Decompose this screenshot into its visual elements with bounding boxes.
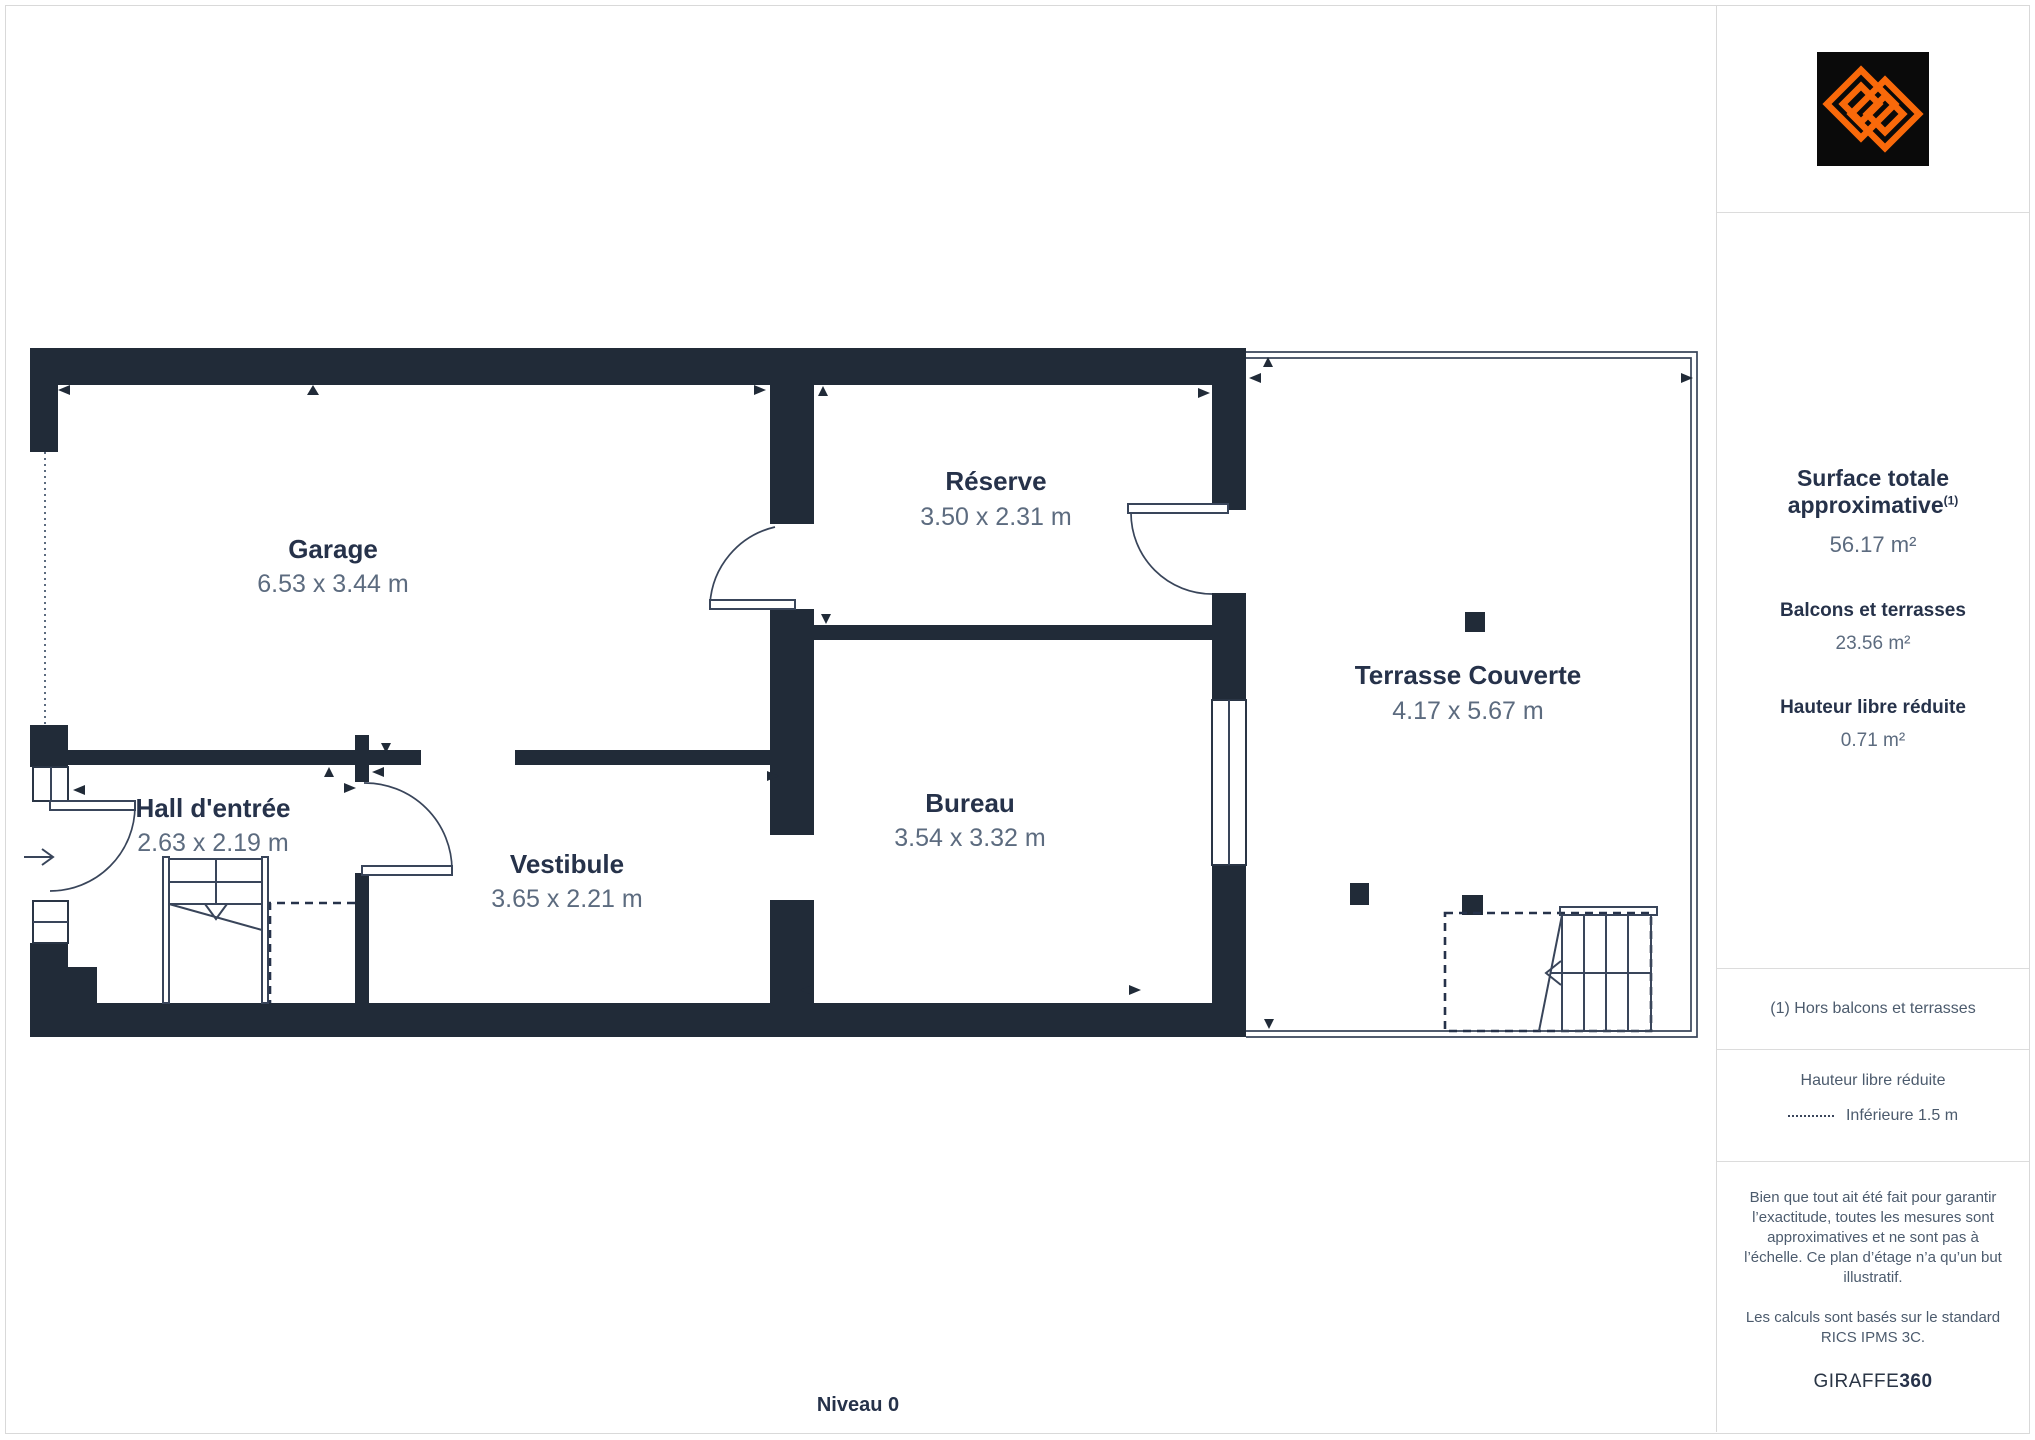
terrace-pillars [1350,612,1485,915]
room-dims-vestibule: 3.65 x 2.21 m [491,885,642,913]
total-surface-value: 56.17 m² [1717,532,2029,558]
measure-arrow-icons [58,357,1693,1029]
room-label-bureau: Bureau [925,788,1015,818]
legend-section: Hauteur libre réduite Inférieure 1.5 m [1717,1050,2029,1162]
total-surface-footnote-marker: (1) [1944,493,1959,507]
legend-item-text: Inférieure 1.5 m [1846,1107,1958,1125]
giraffe360-logo [1817,52,1929,166]
giraffe360-logo-mark [1817,52,1929,166]
dotted-line-icon [1788,1115,1834,1117]
room-dims-garage: 6.53 x 3.44 m [257,570,408,598]
room-label-garage: Garage [288,534,378,564]
reduced-height-value: 0.71 m² [1717,730,2029,752]
brand-suffix: 360 [1899,1371,1932,1392]
disclaimer-text-2: Les calculs sont basés sur le standard R… [1737,1308,2009,1348]
walls [30,348,1246,1037]
total-surface-label: Surface totale approximative(1) [1717,465,2029,519]
reduced-height-label: Hauteur libre réduite [1717,697,2029,719]
room-dims-bureau: 3.54 x 3.32 m [894,824,1045,852]
surface-summary-section: Surface totale approximative(1) 56.17 m²… [1717,213,2029,969]
terrace-outline [1246,352,1697,1037]
disclaimer-section: Bien que tout ait été fait pour garantir… [1717,1162,2029,1432]
entrance-arrow-icon [24,849,53,865]
room-labels: Garage 6.53 x 3.44 m Réserve 3.50 x 2.31… [135,466,1581,913]
footnote-section: (1) Hors balcons et terrasses [1717,969,2029,1050]
brand-name: GIRAFFE [1813,1371,1899,1392]
room-dims-hall: 2.63 x 2.19 m [137,829,288,857]
balconies-value: 23.56 m² [1717,633,2029,655]
room-label-reserve: Réserve [945,466,1046,496]
room-dims-reserve: 3.50 x 2.31 m [920,503,1071,531]
disclaimer-text-1: Bien que tout ait été fait pour garantir… [1737,1188,2009,1288]
room-label-vestibule: Vestibule [510,849,624,879]
room-label-hall: Hall d'entrée [135,793,290,823]
legend-title: Hauteur libre réduite [1717,1072,2029,1090]
logo-section [1717,6,2029,213]
reduced-height-boundary [270,903,355,1003]
balconies-label: Balcons et terrasses [1717,600,2029,622]
brand-wordmark: GIRAFFE360 [1737,1372,2009,1392]
total-surface-text: Surface totale approximative [1788,465,1949,518]
staircase-terrace [1445,907,1657,1031]
staircase-hall [163,857,268,1003]
level-label: Niveau 0 [0,1394,1716,1417]
room-dims-terrasse: 4.17 x 5.67 m [1392,697,1543,725]
info-sidebar: Surface totale approximative(1) 56.17 m²… [1716,6,2029,1432]
room-label-terrasse: Terrasse Couverte [1355,660,1581,690]
footnote-text: (1) Hors balcons et terrasses [1770,1000,1975,1018]
floorplan-page: Garage 6.53 x 3.44 m Réserve 3.50 x 2.31… [0,0,2035,1440]
